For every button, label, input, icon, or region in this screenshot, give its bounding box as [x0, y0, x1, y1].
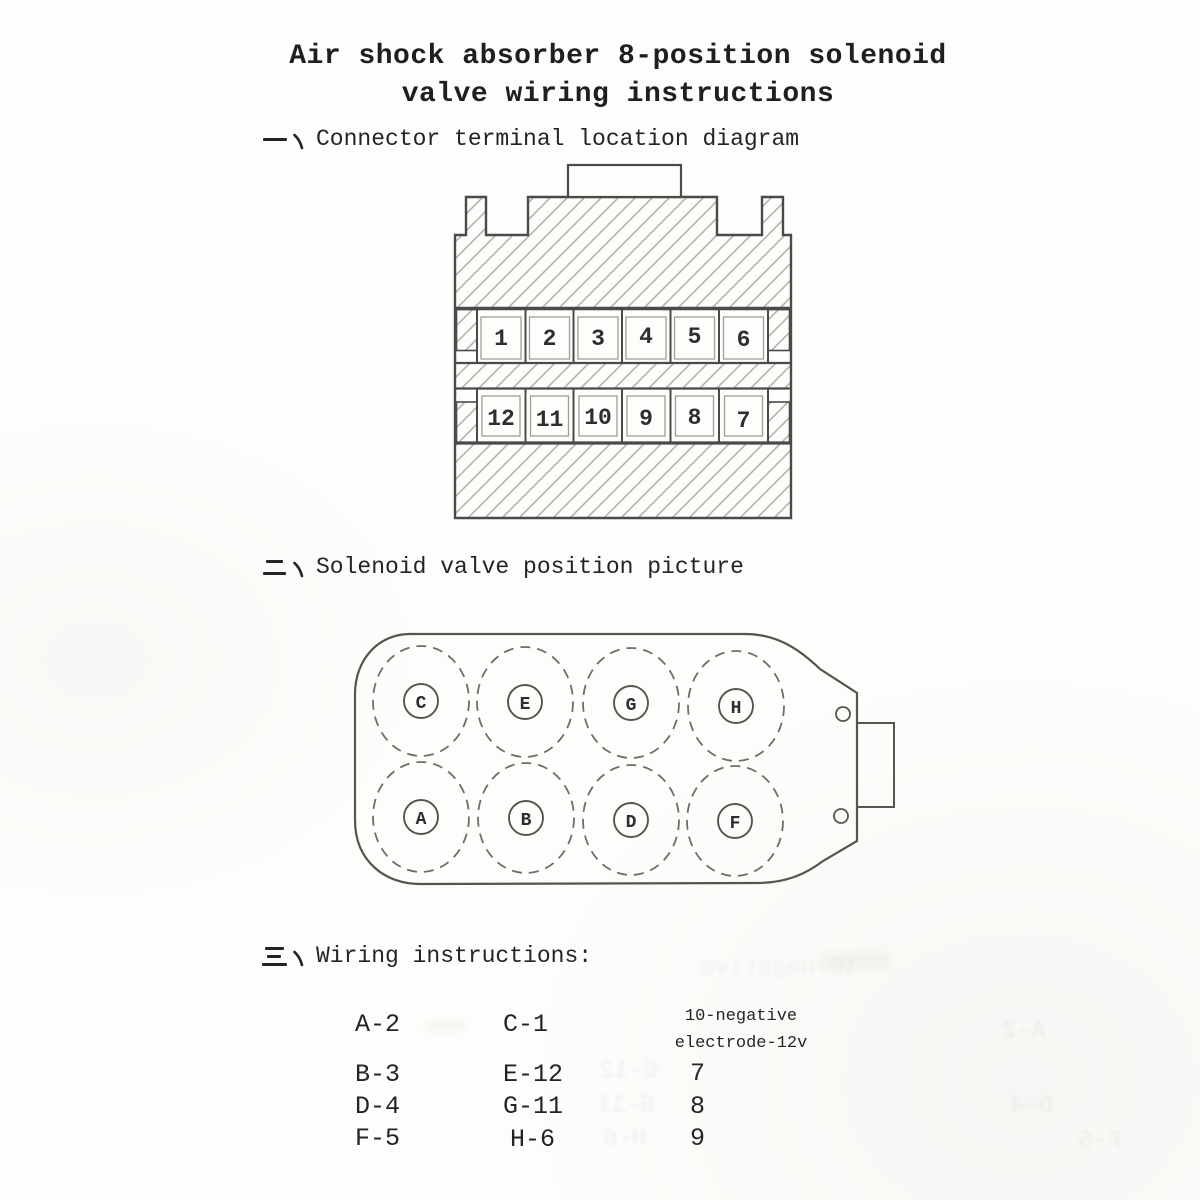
connector-terminal-diagram: 1 2 3 4 5 6 12 11 10 9 8 7 [445, 158, 800, 530]
cjk-numeral-three-icon [262, 944, 288, 968]
title-line-2: valve wiring instructions [36, 76, 1200, 114]
bleed-through-text: D-4 [1010, 1093, 1053, 1120]
solenoid-valve-position-figure: C E G H A B D F [345, 620, 910, 895]
wiring-terminal: 8 [690, 1094, 705, 1120]
terminal-number: 11 [536, 407, 564, 433]
terminal-number: 12 [487, 406, 515, 432]
valve-body-outline [355, 634, 857, 884]
valve-position-letter: B [521, 811, 532, 831]
wiring-terminal: 9 [690, 1126, 705, 1152]
bleed-through-text: H-6 [603, 1126, 646, 1153]
mounting-hole [834, 809, 848, 823]
bleed-through-text: E-12 [600, 1058, 658, 1085]
wiring-terminal: 7 [690, 1061, 705, 1087]
cjk-comma-icon [291, 560, 307, 580]
wiring-pair: A-2 [355, 1012, 400, 1038]
wiring-pair: G-11 [503, 1094, 563, 1120]
valve-position-letter: A [416, 810, 427, 830]
negative-electrode-line1: 10-negative [652, 1003, 830, 1030]
terminal-number: 2 [543, 326, 557, 352]
valve-position-letter: F [730, 814, 741, 834]
section-one-label: Connector terminal location diagram [316, 124, 799, 154]
mounting-hole [836, 707, 850, 721]
cjk-comma-icon [291, 132, 307, 152]
wiring-pair: F-5 [355, 1126, 400, 1152]
cjk-comma-icon [291, 949, 307, 969]
wiring-pair: C-1 [503, 1012, 548, 1038]
valve-position-letter: H [731, 699, 742, 719]
valve-connector-stub [857, 723, 894, 807]
wiring-pair: D-4 [355, 1094, 400, 1120]
scan-smudge [820, 952, 890, 970]
terminal-number: 8 [688, 405, 702, 431]
section-heading-wiring: Wiring instructions: [262, 941, 592, 971]
hatch-block-top-right [768, 310, 790, 351]
valve-position-letter: E [520, 695, 531, 715]
document-title: Air shock absorber 8-position solenoid v… [0, 38, 1200, 114]
terminal-number: 6 [737, 327, 751, 353]
terminal-number: 1 [494, 326, 508, 352]
cjk-numeral-two-icon [262, 555, 288, 579]
section-heading-valve: Solenoid valve position picture [262, 552, 744, 582]
negative-electrode-line2: electrode-12v [652, 1030, 830, 1057]
terminal-number: 10 [584, 405, 612, 431]
bleed-through-text: F-5 [1078, 1128, 1121, 1155]
wiring-pair: H-6 [510, 1127, 555, 1153]
wiring-pair: B-3 [355, 1062, 400, 1088]
bleed-through-text: 10-negative [700, 955, 858, 982]
bleed-through-text: G-11 [597, 1092, 655, 1119]
connector-key-tab [568, 165, 681, 197]
bleed-through-text: A-2 [1002, 1018, 1045, 1045]
scanned-document-page: Air shock absorber 8-position solenoid v… [0, 0, 1200, 1200]
negative-electrode-note: 10-negative electrode-12v [652, 1003, 830, 1057]
title-line-1: Air shock absorber 8-position solenoid [36, 38, 1200, 76]
terminal-number: 4 [639, 324, 653, 350]
terminal-number: 5 [688, 324, 702, 350]
terminal-number: 3 [591, 326, 605, 352]
section-heading-connector: Connector terminal location diagram [262, 124, 799, 154]
hatch-block-bottom-left [457, 402, 478, 443]
section-three-label: Wiring instructions: [316, 941, 592, 971]
valve-position-letter: D [626, 813, 637, 833]
hatch-block-top-left [457, 310, 478, 351]
scan-smudge [425, 1020, 465, 1032]
valve-position-letter: G [626, 696, 637, 716]
cjk-numeral-one-icon [262, 127, 288, 151]
valve-position-letter: C [416, 694, 427, 714]
section-two-label: Solenoid valve position picture [316, 552, 744, 582]
terminal-number: 7 [737, 408, 751, 434]
hatch-block-bottom-right [768, 402, 790, 443]
terminal-number: 9 [639, 406, 653, 432]
wiring-pair: E-12 [503, 1062, 563, 1088]
